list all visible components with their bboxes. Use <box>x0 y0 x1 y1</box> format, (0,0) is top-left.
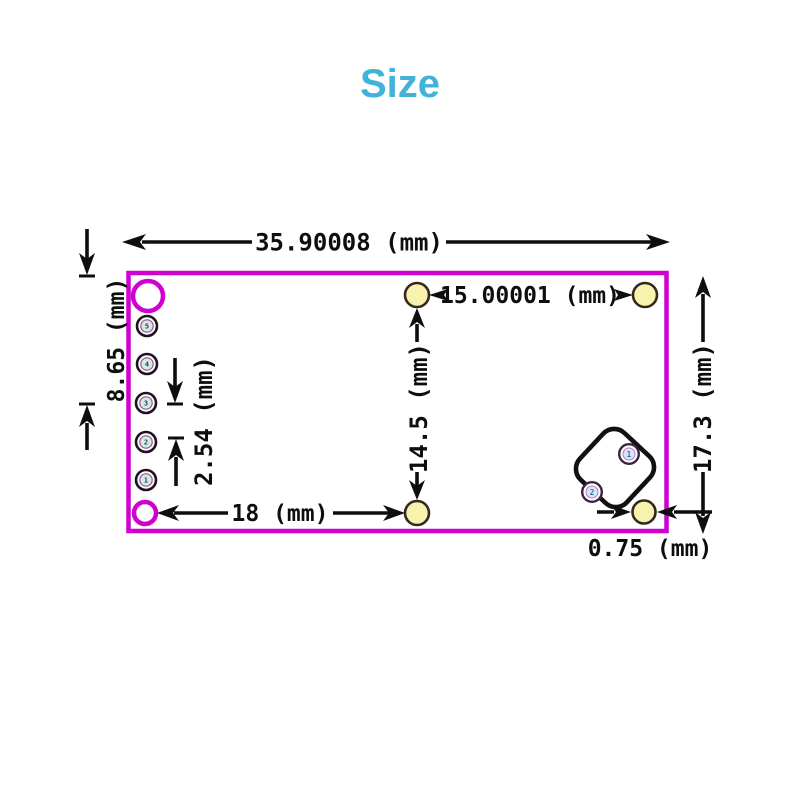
pin-circle: 2 <box>136 432 156 452</box>
pin-number: 5 <box>145 323 149 331</box>
dim-pad-span-horizontal-label: 15.00001 (mm) <box>440 283 620 309</box>
dim-board-width-label: 35.90008 (mm) <box>255 229 443 257</box>
component-pad: 1 <box>619 444 639 464</box>
component-pad-number: 1 <box>627 450 632 459</box>
component-pad-number: 2 <box>590 488 595 497</box>
pin-circle: 3 <box>136 393 156 413</box>
dim-board-height: 17.3 (mm) <box>689 276 717 534</box>
dim-left-offset-label: 8.65 (mm) <box>104 278 130 403</box>
pad-top-left <box>405 283 429 307</box>
size-diagram-page: Size 5 4 3 2 1 <box>0 0 800 800</box>
pad-bottom-right <box>633 501 656 524</box>
dim-board-width: 35.90008 (mm) <box>122 229 670 257</box>
mounting-hole-bottom-left <box>134 502 156 524</box>
dimension-diagram: Size 5 4 3 2 1 <box>0 0 800 800</box>
dim-pad-span-horizontal: 15.00001 (mm) <box>429 283 633 309</box>
pin-number: 3 <box>144 400 148 408</box>
pad-top-right <box>633 283 657 307</box>
component-pad: 2 <box>582 482 602 502</box>
dim-bottom-span-label: 18 (mm) <box>232 501 329 527</box>
pin-circle: 4 <box>137 354 157 374</box>
dim-pad-span-vertical-label: 14.5 (mm) <box>405 343 433 473</box>
pin-number: 2 <box>144 439 148 447</box>
dim-left-offset: 8.65 (mm) <box>79 229 130 450</box>
pin-number: 1 <box>144 477 148 485</box>
dim-board-height-label: 17.3 (mm) <box>689 343 717 473</box>
dim-pin-pitch-label: 2.54 (mm) <box>190 356 218 486</box>
page-title: Size <box>360 62 440 106</box>
pin-number: 4 <box>145 361 149 369</box>
dim-edge-gap-label: 0.75 (mm) <box>588 536 713 562</box>
pin-circle: 5 <box>137 316 157 336</box>
pin-circle: 1 <box>136 470 156 490</box>
mounting-hole-top-left <box>133 281 163 311</box>
pad-bottom-center <box>405 501 429 525</box>
